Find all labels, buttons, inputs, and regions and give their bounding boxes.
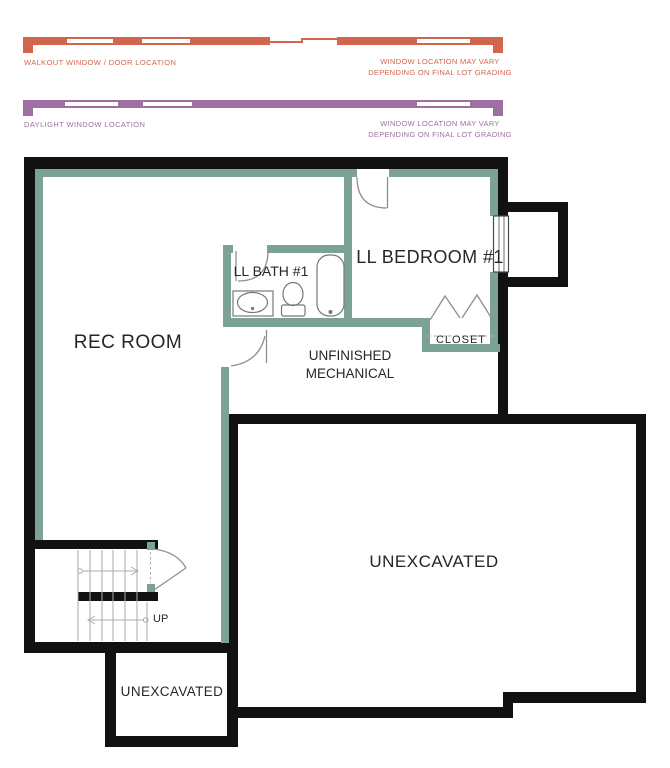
legend-daylight-note: WINDOW LOCATION MAY VARY DEPENDING ON FI…	[340, 118, 540, 140]
floor-plan: WALKOUT WINDOW / DOOR LOCATION WINDOW LO…	[0, 0, 670, 768]
interior-wall-left	[35, 169, 43, 540]
mechanical-label-line2: MECHANICAL	[306, 365, 395, 383]
room-label-unexcavated-large: UNEXCAVATED	[369, 552, 498, 572]
walkout-bar-segment	[337, 37, 417, 45]
walkout-window-marker	[417, 37, 470, 45]
daylight-note-line2: DEPENDING ON FINAL LOT GRADING	[340, 129, 540, 140]
small-unexcavated-wall-left	[105, 642, 116, 747]
room-label-unexcavated-small: UNEXCAVATED	[121, 684, 224, 699]
window-well-wall-right	[558, 202, 568, 287]
walkout-door-thin-line	[270, 41, 303, 43]
stair-door	[151, 549, 187, 590]
legend-walkout-label: WALKOUT WINDOW / DOOR LOCATION	[24, 58, 176, 67]
bedroom-door	[357, 177, 388, 208]
stair-landing-wall	[78, 592, 158, 601]
walkout-window-marker	[142, 37, 190, 45]
walkout-window-marker	[67, 37, 113, 45]
interior-wall-top-west	[35, 169, 357, 177]
bath-bedroom-wall-south	[223, 318, 430, 327]
room-label-rec-room: REC ROOM	[74, 332, 183, 354]
exterior-wall-bottom-left	[24, 642, 238, 653]
closet-wall-east	[490, 327, 498, 352]
mechanical-door	[231, 330, 267, 366]
room-label-mechanical: UNFINISHED MECHANICAL	[306, 347, 395, 382]
closet-bifold-doors	[427, 295, 496, 336]
exterior-wall-left	[24, 157, 35, 653]
unexcavated-wall-bottom-right	[503, 692, 646, 703]
room-label-bath: LL BATH #1	[234, 263, 309, 279]
daylight-window-marker	[417, 100, 470, 108]
stair-wall-top	[35, 540, 158, 549]
exterior-wall-top	[24, 157, 508, 169]
walkout-note-line1: WINDOW LOCATION MAY VARY	[340, 56, 540, 67]
legend-daylight-label: DAYLIGHT WINDOW LOCATION	[24, 120, 145, 129]
bath-wall-west	[223, 245, 231, 321]
window-well-wall-bottom	[498, 277, 568, 287]
room-label-closet: CLOSET	[436, 334, 486, 346]
unexcavated-wall-right	[636, 414, 646, 703]
unexcavated-wall-bottom-left	[238, 707, 513, 718]
mechanical-label-line1: UNFINISHED	[306, 347, 395, 365]
daylight-bar-right-corner	[493, 100, 503, 116]
daylight-window-marker	[65, 100, 118, 108]
toilet-fixture	[282, 283, 306, 317]
walkout-bar-right-corner	[493, 37, 503, 53]
bath-wall-top	[267, 245, 352, 253]
daylight-window-marker	[143, 100, 192, 108]
walkout-door-thin-line	[303, 38, 337, 40]
bathtub-fixture	[317, 255, 344, 316]
walkout-note-line2: DEPENDING ON FINAL LOT GRADING	[340, 67, 540, 78]
stair-door-jamb-bottom	[147, 584, 155, 592]
stairs-up-label: UP	[153, 613, 168, 625]
exterior-wall-right	[498, 157, 508, 424]
small-unexcavated-wall-bottom	[105, 736, 238, 747]
daylight-note-line1: WINDOW LOCATION MAY VARY	[340, 118, 540, 129]
bedroom-wall-east-upper	[490, 169, 498, 216]
unexcavated-wall-top	[228, 414, 646, 424]
small-unexcavated-wall-right	[227, 642, 238, 747]
bedroom-wall-east-lower	[490, 272, 498, 327]
interior-wall-top-east	[389, 169, 498, 177]
stair-door-jamb-top	[147, 542, 155, 550]
legend-walkout-note: WINDOW LOCATION MAY VARY DEPENDING ON FI…	[340, 56, 540, 78]
sink-fixture	[233, 291, 273, 316]
room-label-bedroom: LL BEDROOM #1	[356, 247, 504, 268]
rec-room-wall-east	[221, 367, 229, 643]
